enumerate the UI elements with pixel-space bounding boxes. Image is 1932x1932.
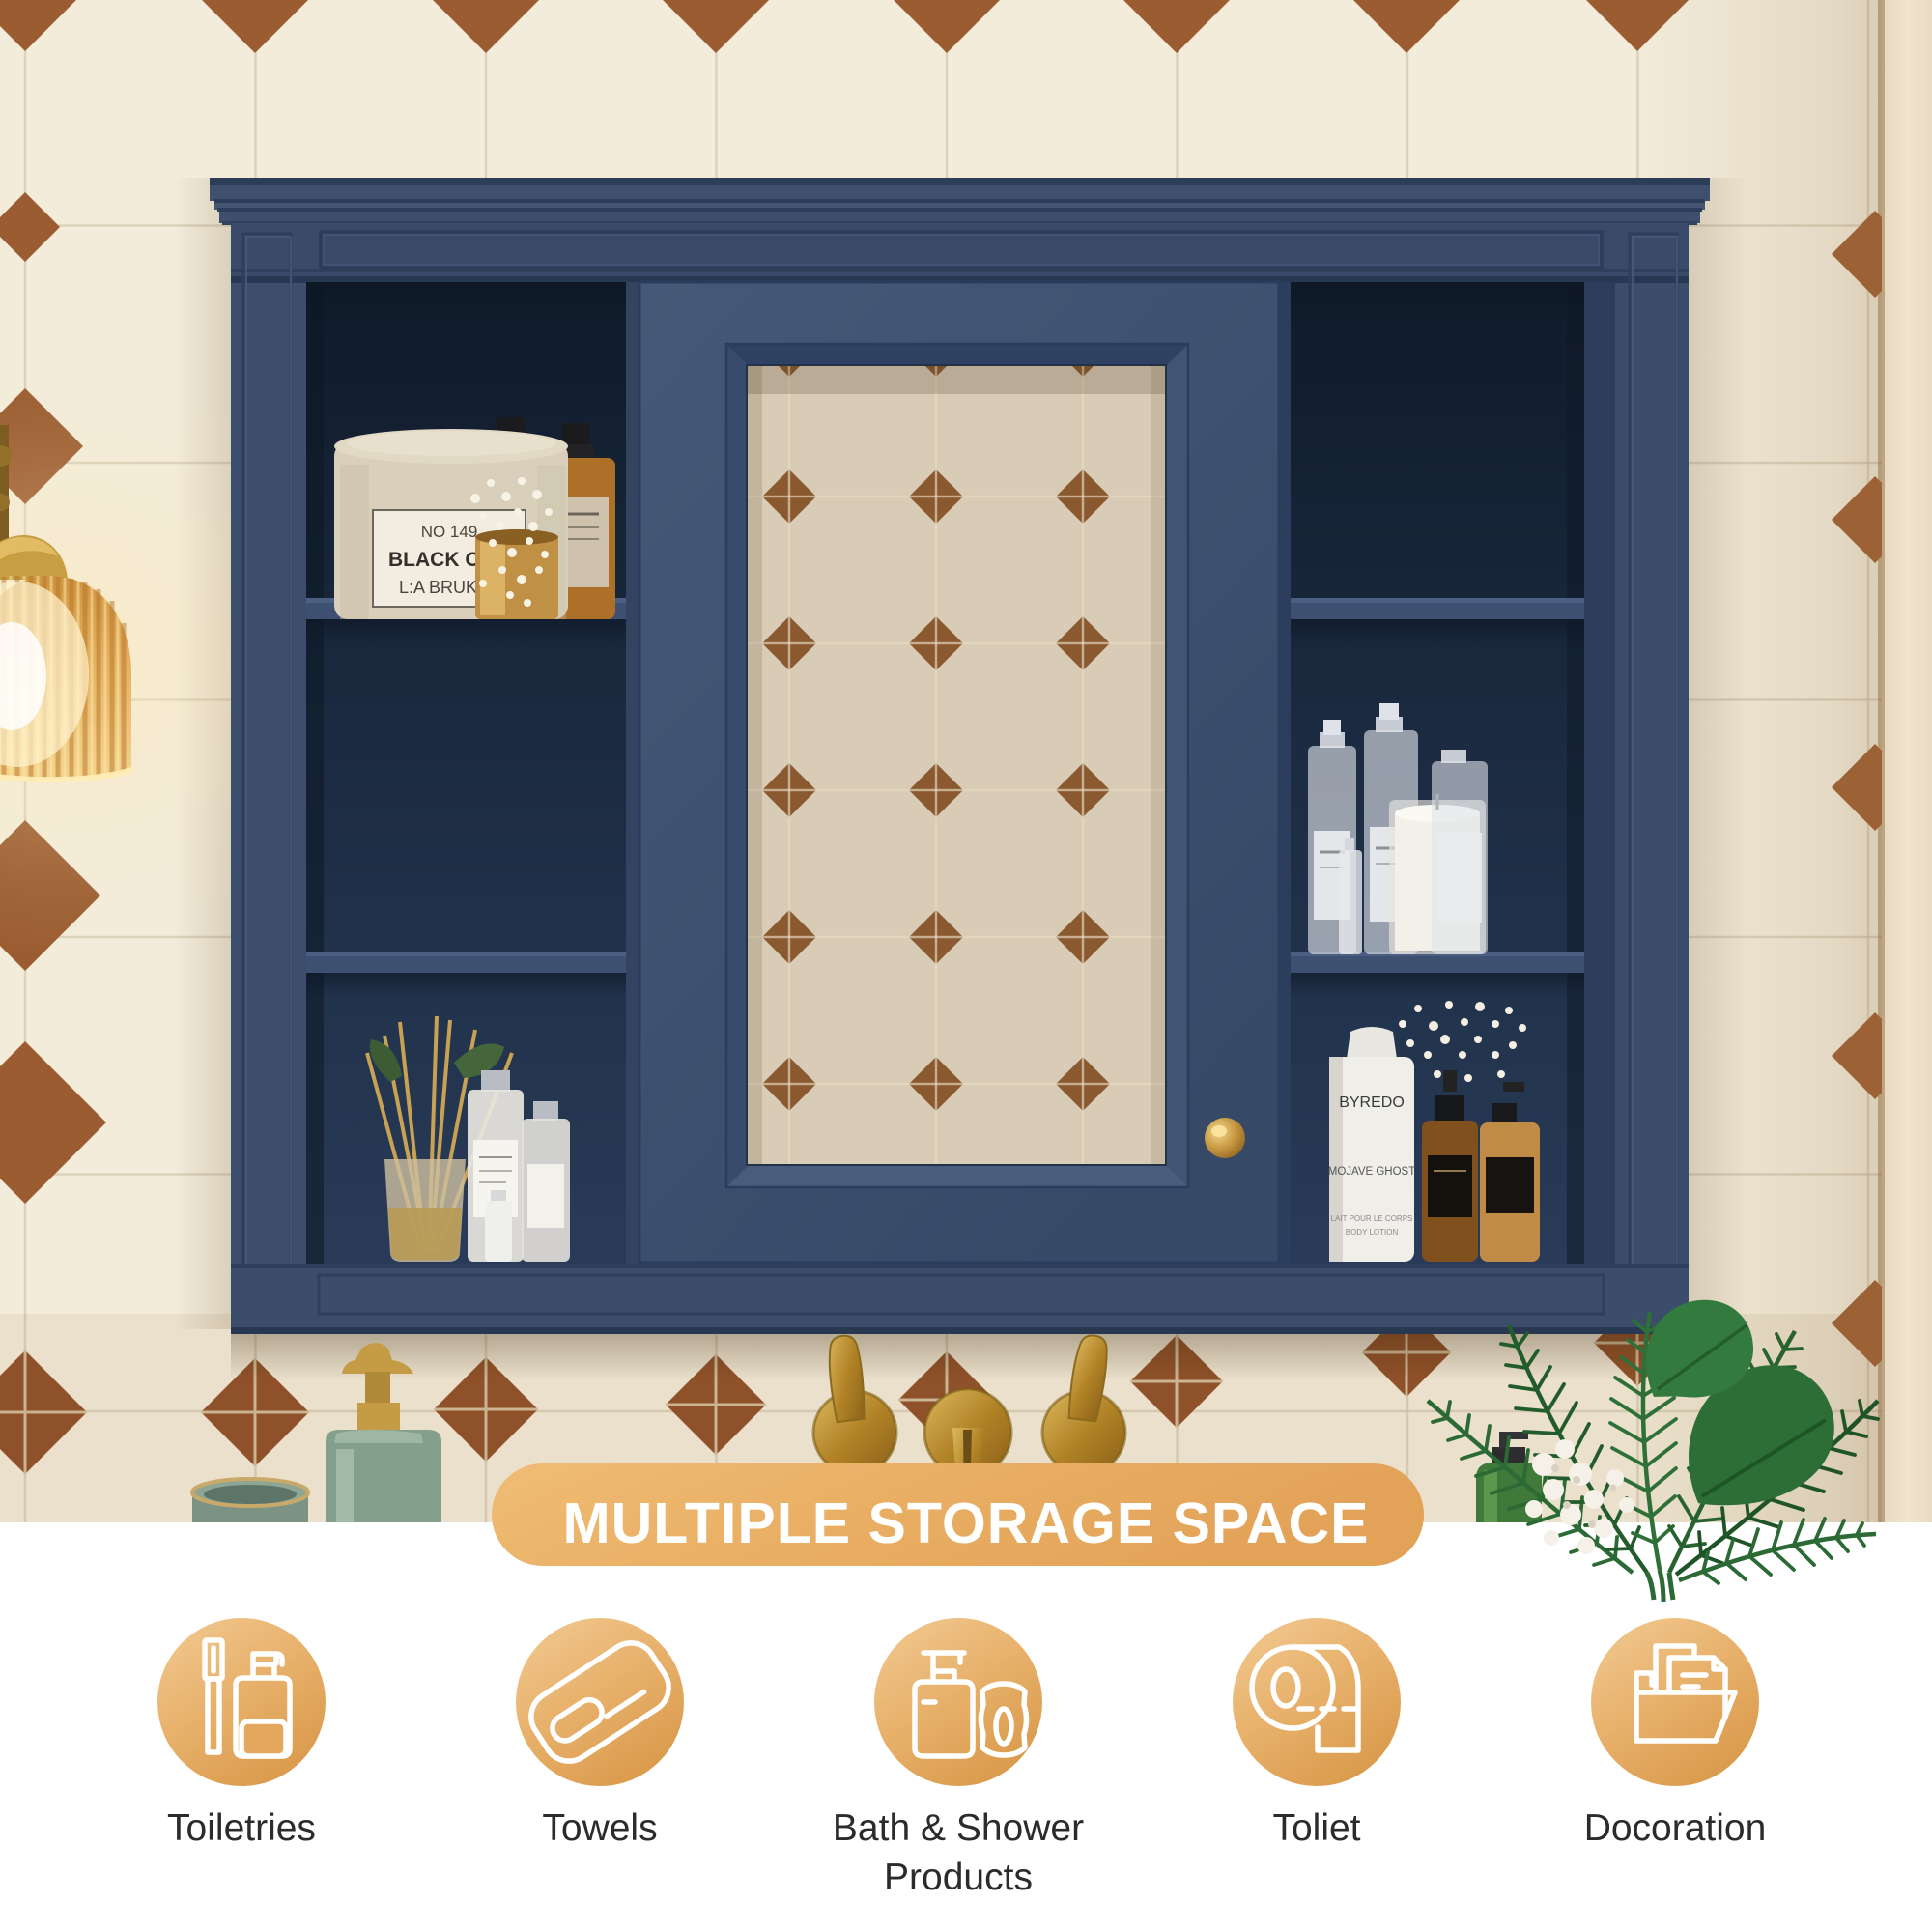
svg-text:BODY LOTION: BODY LOTION [1346, 1228, 1399, 1236]
svg-text:LAIT POUR LE CORPS: LAIT POUR LE CORPS [1331, 1214, 1413, 1223]
svg-text:Toliet: Toliet [1272, 1807, 1360, 1849]
svg-text:Towels: Towels [542, 1807, 657, 1849]
svg-text:Products: Products [884, 1857, 1033, 1898]
svg-text:Bath & Shower: Bath & Shower [833, 1807, 1084, 1849]
svg-text:Toiletries: Toiletries [167, 1807, 316, 1849]
svg-text:Docoration: Docoration [1584, 1807, 1767, 1849]
svg-text:NO 149: NO 149 [421, 523, 478, 541]
svg-text:BYREDO: BYREDO [1339, 1094, 1405, 1111]
svg-text:MULTIPLE STORAGE SPACE: MULTIPLE STORAGE SPACE [563, 1492, 1370, 1555]
svg-text:MOJAVE GHOST: MOJAVE GHOST [1328, 1166, 1416, 1178]
